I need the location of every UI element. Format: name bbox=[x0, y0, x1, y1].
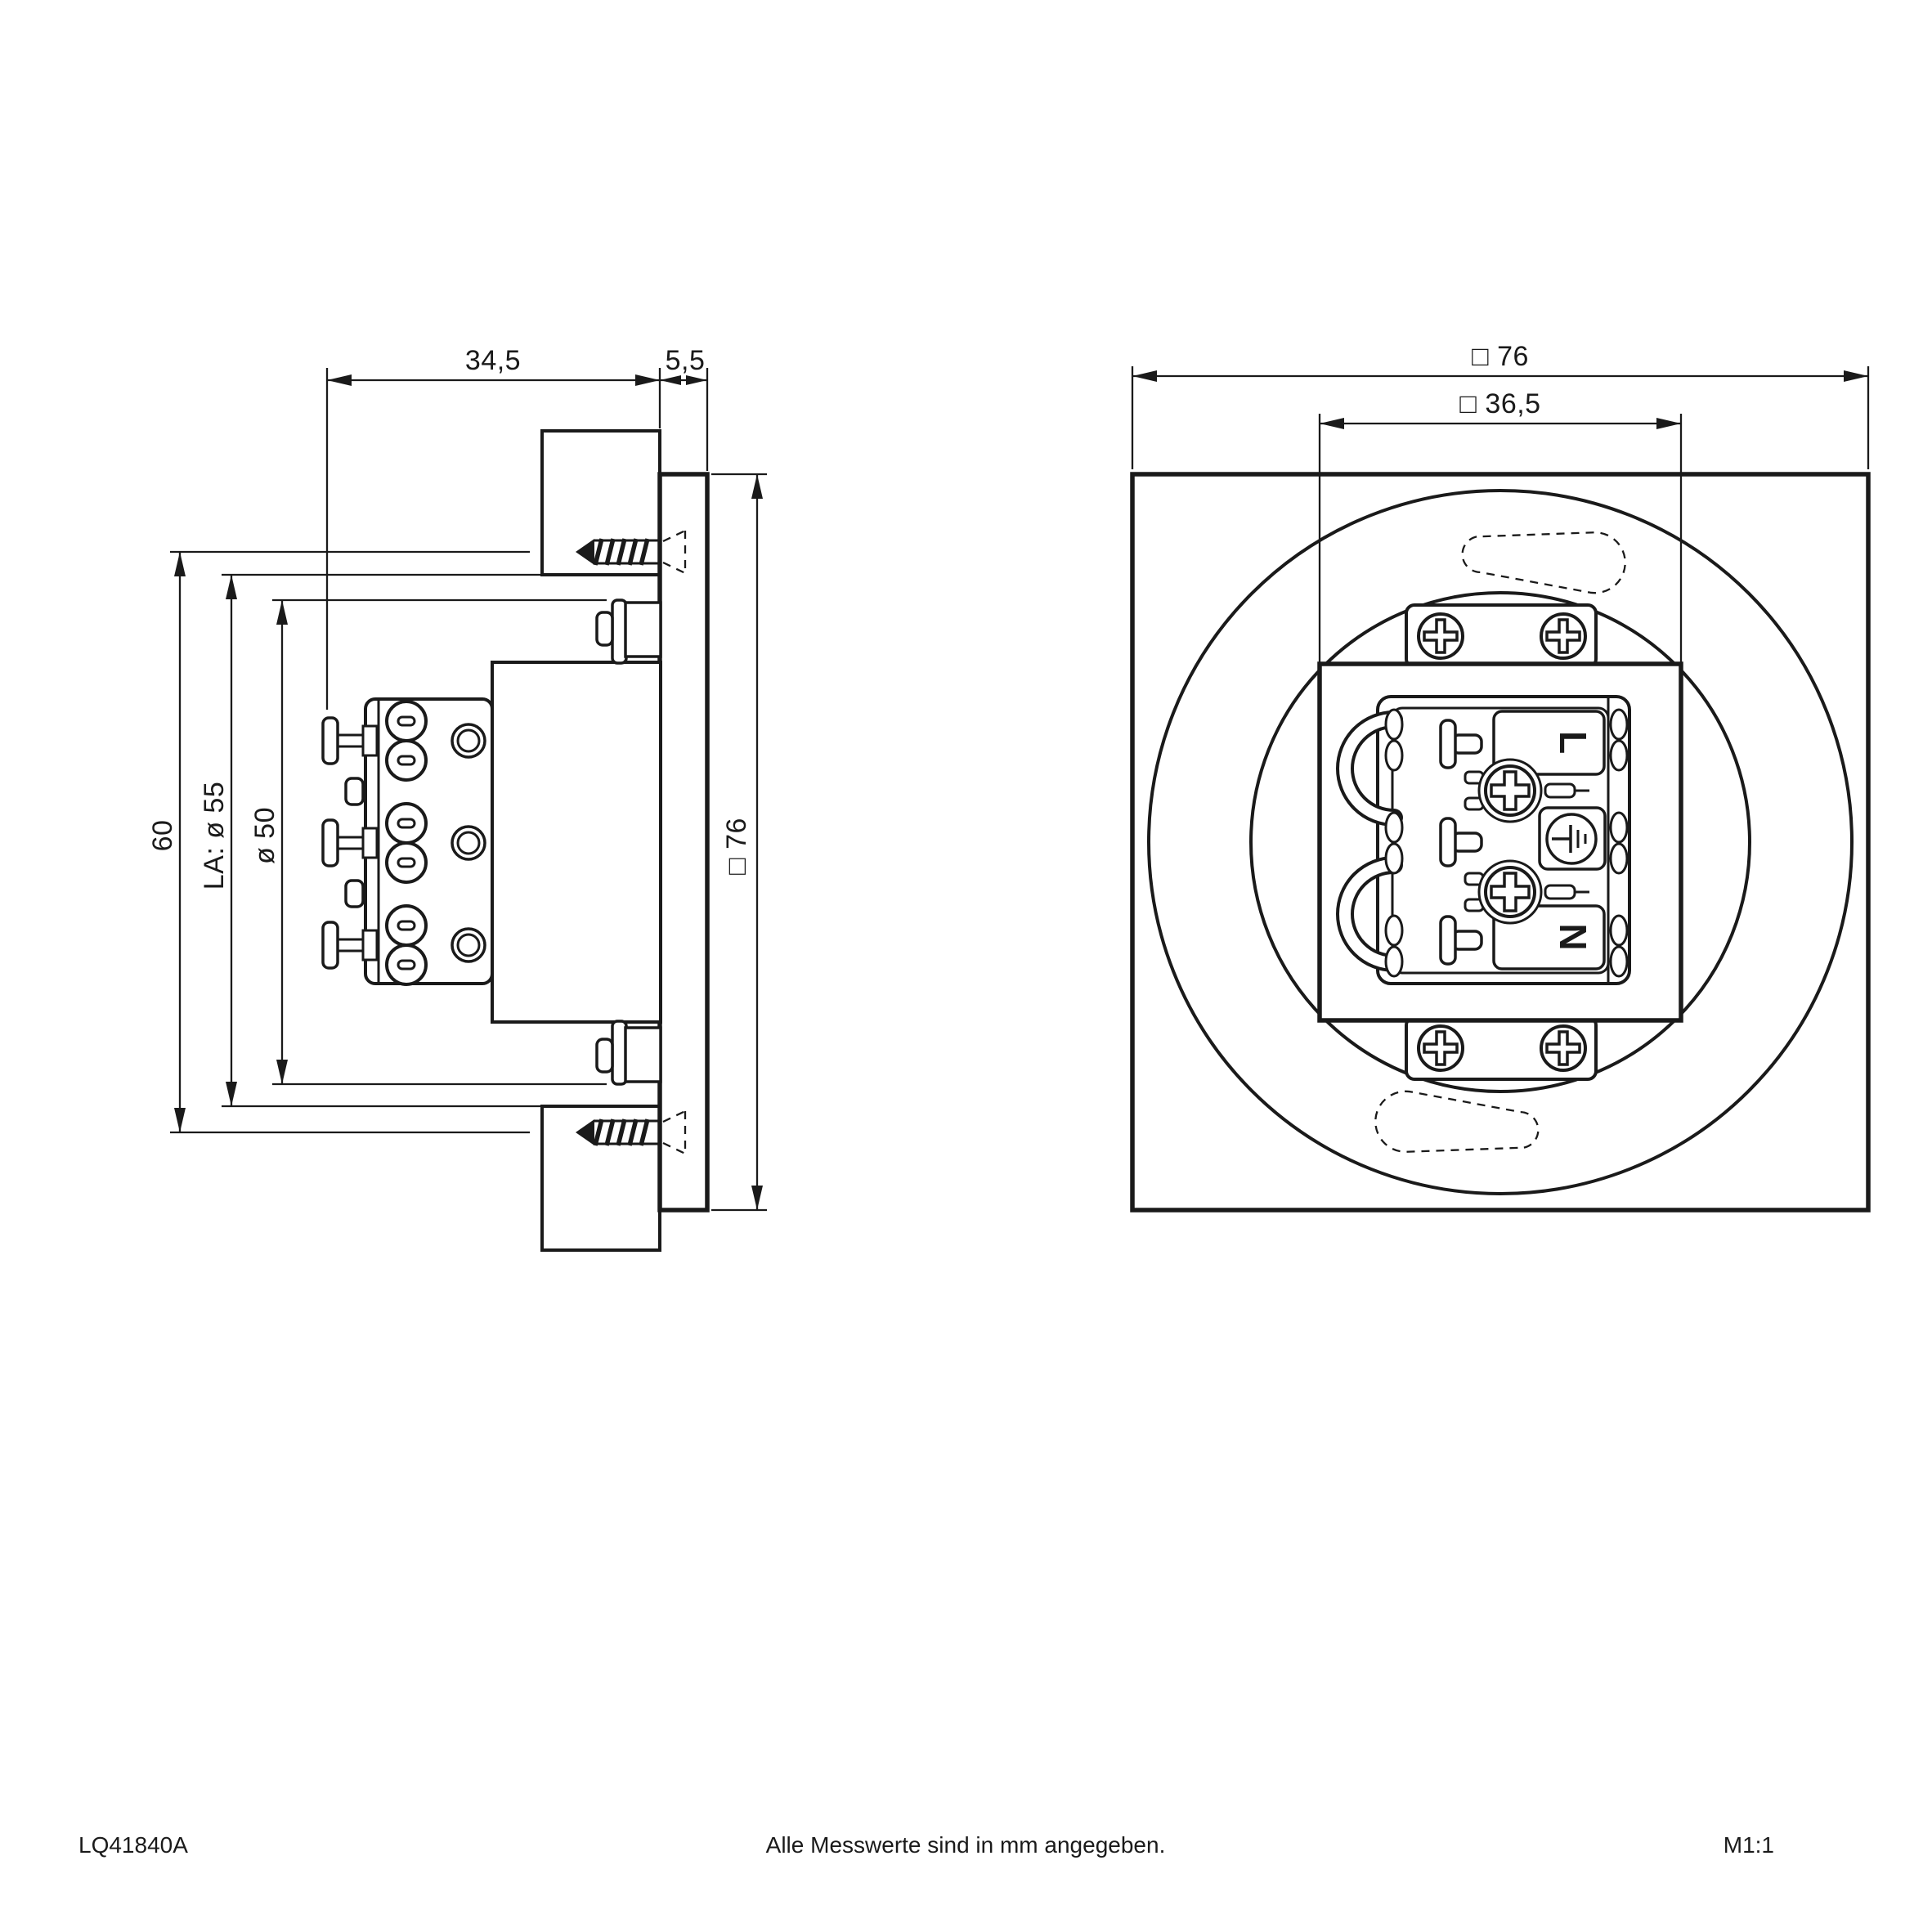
dim-cutout-diameter-label: LA: ø 55 bbox=[199, 782, 230, 890]
terminal-label-live: L bbox=[1552, 731, 1594, 754]
tab-screw-icon bbox=[1419, 614, 1463, 658]
front-view: L N □ 76 □ 36,5 bbox=[1132, 341, 1868, 1210]
terminal-divider-tab-2 bbox=[346, 881, 363, 907]
side-section-view: 34,5 5,5 60 LA: ø 55 bbox=[147, 345, 767, 1250]
dim-panel-thickness: 5,5 bbox=[660, 345, 707, 471]
dim-outer-size-label: □ 76 bbox=[1472, 341, 1529, 372]
dim-screw-spacing-label: 60 bbox=[147, 820, 178, 852]
terminal-label-neutral: N bbox=[1552, 923, 1594, 950]
technical-drawing: 34,5 5,5 60 LA: ø 55 bbox=[0, 0, 1932, 1932]
retaining-clip-upper bbox=[597, 600, 661, 663]
title-block: LQ41840A Alle Messwerte sind in mm angeg… bbox=[78, 1832, 1774, 1858]
terminal-divider-tab-1 bbox=[346, 778, 363, 805]
retaining-clip-lower bbox=[597, 1021, 661, 1084]
clamp-screw-icon bbox=[1479, 760, 1541, 822]
dim-plate-size-side: □ 76 bbox=[711, 474, 767, 1210]
dim-recess-depth-label: 34,5 bbox=[465, 345, 521, 376]
tab-screw-icon bbox=[1541, 1026, 1585, 1070]
luminaire-body-section bbox=[492, 662, 661, 1022]
mounting-screw-upper bbox=[576, 539, 661, 565]
dim-recess-depth: 34,5 bbox=[327, 345, 660, 710]
terminal-block-front: L N bbox=[1345, 697, 1629, 984]
drawing-number: LQ41840A bbox=[78, 1832, 188, 1858]
dim-body-diameter-label: ø 50 bbox=[249, 807, 280, 864]
tab-screw-icon bbox=[1541, 614, 1585, 658]
dim-panel-thickness-label: 5,5 bbox=[666, 345, 706, 376]
mounting-screw-lower bbox=[576, 1119, 661, 1145]
units-note: Alle Messwerte sind in mm angegeben. bbox=[766, 1832, 1166, 1858]
dim-plate-size-side-label: □ 76 bbox=[721, 818, 752, 875]
tab-screw-icon bbox=[1419, 1026, 1463, 1070]
scale-note: M1:1 bbox=[1724, 1832, 1774, 1858]
terminal-block-section bbox=[323, 699, 492, 984]
dim-cutout-size-label: □ 36,5 bbox=[1459, 388, 1540, 419]
front-plate-section bbox=[660, 474, 707, 1210]
drawing-sheet: 34,5 5,5 60 LA: ø 55 bbox=[0, 0, 1932, 1932]
clamp-screw-icon bbox=[1479, 861, 1541, 923]
